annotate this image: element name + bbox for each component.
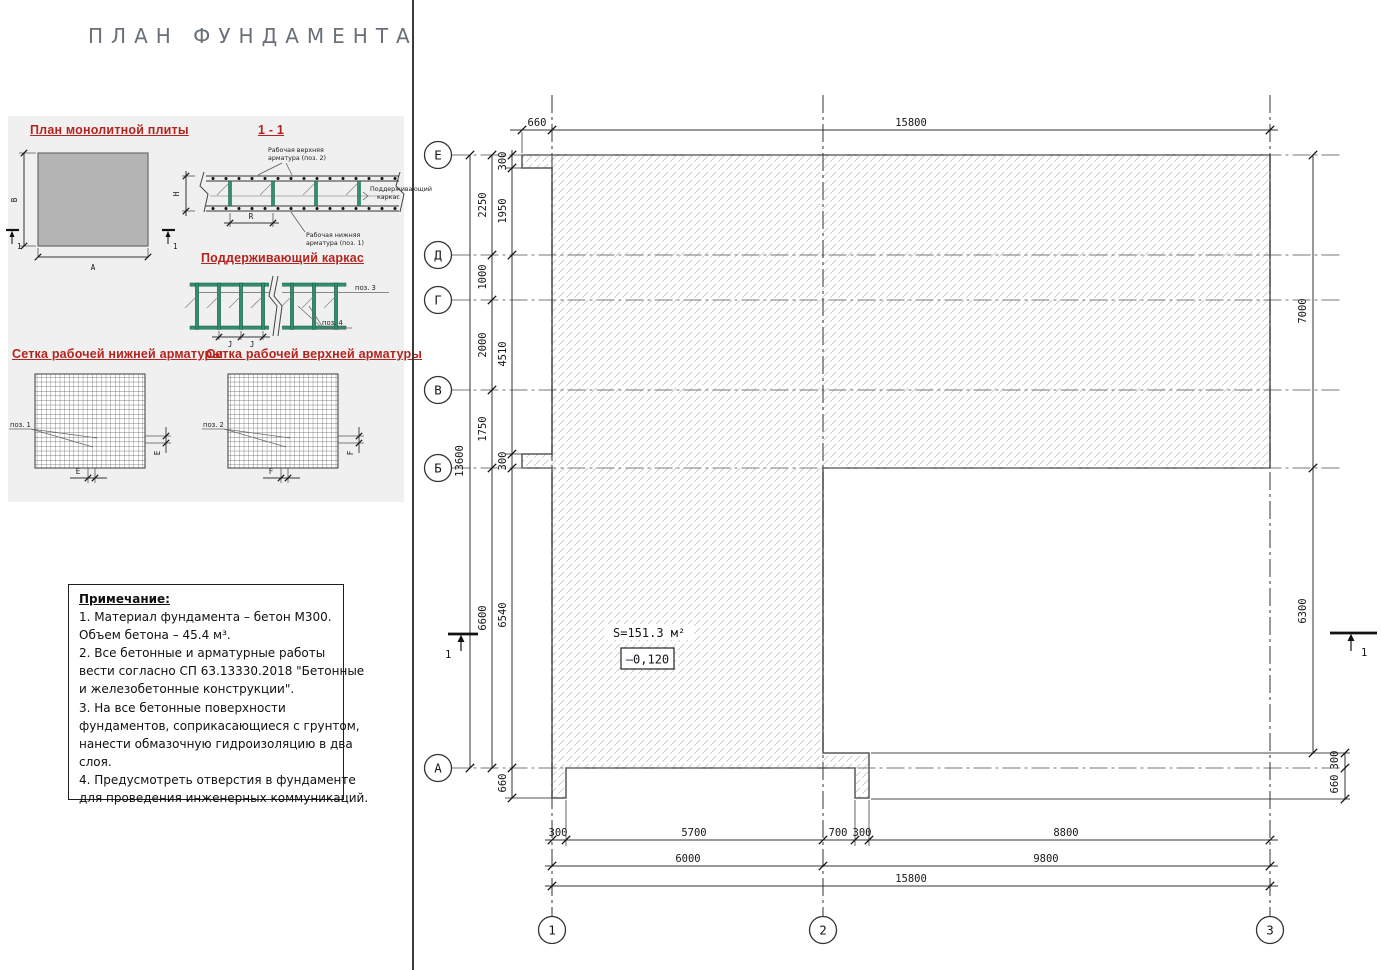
svg-text:1000: 1000 [477, 264, 489, 289]
svg-text:300: 300 [497, 152, 509, 171]
axis-row-label: Д [434, 248, 442, 263]
svg-text:арматура (поз. 1): арматура (поз. 1) [306, 240, 364, 247]
axis-row-label: Е [434, 148, 442, 163]
dim-left-13600: 13600 [454, 445, 466, 477]
dim-left-tab-660: 660 [497, 774, 509, 793]
dim-bottom-15800: 15800 [895, 873, 927, 885]
svg-text:E: E [153, 450, 162, 455]
mesh-lower-detail: поз. 1 E E [9, 374, 171, 483]
left-diagrams-svg: B A 1 1 [8, 116, 404, 502]
svg-text:J: J [250, 340, 255, 349]
svg-text:300: 300 [549, 827, 568, 839]
note-line: 4. Предусмотреть отверстия в фундаменте [79, 771, 337, 789]
svg-text:1: 1 [173, 242, 178, 251]
notes-box: Примечание: 1. Материал фундамента – бет… [68, 584, 344, 800]
page-title: ПЛАН ФУНДАМЕНТА [88, 24, 418, 48]
note-line: 2. Все бетонные и арматурные работы [79, 644, 337, 662]
support-posts [229, 181, 361, 206]
note-line: нанести обмазочную гидроизоляцию в два [79, 735, 337, 753]
svg-text:1: 1 [1361, 647, 1367, 659]
dim-top-660: 660 [528, 117, 547, 129]
svg-text:6000: 6000 [675, 853, 700, 865]
axis-row-label: Б [434, 461, 442, 476]
svg-text:каркас: каркас [377, 194, 400, 201]
svg-text:660: 660 [1329, 775, 1341, 794]
mesh-upper-detail: поз. 2 F F [202, 374, 364, 483]
note-line: вести согласно СП 63.13330.2018 "Бетонны… [79, 662, 337, 680]
axis-col-label: 1 [548, 923, 556, 938]
svg-text:300: 300 [1329, 751, 1341, 770]
label-bottom-rebar: Рабочая нижняя [306, 231, 361, 239]
note-line: и железобетонные конструкции". [79, 680, 337, 698]
section-1-1-detail: Рабочая верхняя арматура (поз. 2) Поддер… [172, 146, 432, 247]
svg-text:4510: 4510 [497, 341, 509, 366]
label-pos2: поз. 2 [203, 421, 224, 429]
svg-text:F: F [346, 450, 355, 455]
note-line: 1. Материал фундамента – бетон М300. [79, 608, 337, 626]
svg-text:700: 700 [829, 827, 848, 839]
dim-top-15800: 15800 [895, 117, 927, 129]
svg-text:1: 1 [445, 649, 451, 661]
svg-text:5700: 5700 [681, 827, 706, 839]
strip-foundation-lines [871, 753, 1350, 799]
section-marker-left: 1 [445, 634, 478, 661]
note-line: слоя. [79, 753, 337, 771]
section-cut-mark: 1 [6, 230, 22, 251]
note-line: Объем бетона – 45.4 м³. [79, 626, 337, 644]
area-label: S=151.3 м² [613, 626, 685, 640]
label-pos1: поз. 1 [10, 421, 31, 429]
support-frame-detail: поз. 3 поз. 4 J J [185, 276, 389, 349]
note-line: 3. На все бетонные поверхности [79, 699, 337, 717]
axis-row-label: Г [434, 293, 442, 308]
notes-title: Примечание: [79, 590, 337, 608]
dim-label-f: F [269, 467, 274, 476]
label-top-rebar: Рабочая верхняя [268, 146, 324, 154]
svg-text:2000: 2000 [477, 332, 489, 357]
svg-text:9800: 9800 [1033, 853, 1058, 865]
svg-text:300: 300 [497, 452, 509, 471]
axis-col-label: 3 [1266, 923, 1274, 938]
dim-right-7000: 7000 [1297, 298, 1309, 323]
svg-text:2250: 2250 [477, 192, 489, 217]
dim-label-e: E [76, 467, 81, 476]
dim-label-j: J [228, 340, 233, 349]
dim-label-r: R [249, 212, 254, 221]
slab-plan-thumbnail: B A 1 1 [6, 150, 178, 272]
label-pos3: поз. 3 [355, 284, 376, 292]
dim-label-a: A [91, 263, 96, 272]
axis-row-label: А [434, 761, 442, 776]
axis-col-label: 2 [819, 923, 827, 938]
note-line: для проведения инженерных коммуникаций. [79, 789, 337, 807]
section-marker-right: 1 [1330, 633, 1377, 659]
elevation-value: –0,120 [626, 653, 669, 667]
svg-text:1750: 1750 [477, 416, 489, 441]
dim-right-6300: 6300 [1297, 598, 1309, 623]
axis-row-label: В [434, 383, 442, 398]
svg-text:6600: 6600 [477, 605, 489, 630]
foundation-plan-svg: 660 15800 13600 2250 1000 2000 1750 6600… [413, 0, 1381, 970]
note-line: фундаментов, соприкасающиеся с грунтом, [79, 717, 337, 735]
section-cut-mark: 1 [162, 230, 178, 251]
dim-label-b: B [10, 197, 19, 202]
slab-outline [522, 155, 1270, 798]
label-pos4: поз. 4 [322, 319, 343, 327]
svg-text:арматура (поз. 2): арматура (поз. 2) [268, 155, 326, 162]
svg-text:1950: 1950 [497, 198, 509, 223]
svg-text:6540: 6540 [497, 602, 509, 627]
dim-label-h: H [172, 191, 181, 196]
svg-text:1: 1 [17, 242, 22, 251]
svg-text:8800: 8800 [1053, 827, 1078, 839]
svg-text:300: 300 [853, 827, 872, 839]
